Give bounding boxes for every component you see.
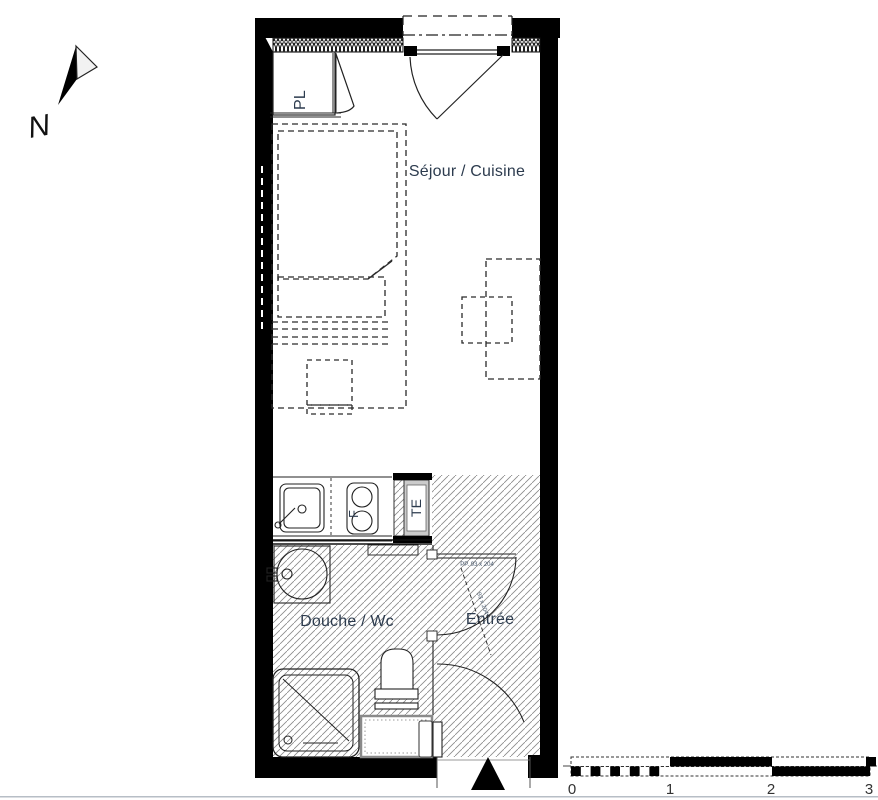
- entrance-arrow-icon: [471, 757, 505, 790]
- scale-tick-0: 0: [568, 781, 576, 798]
- threshold-step: [368, 545, 418, 555]
- scale-tick-1: 1: [666, 781, 674, 798]
- electrical-panel-label: TE: [408, 499, 424, 517]
- kitchen-counter: [273, 477, 392, 541]
- stove-label: F: [346, 510, 361, 518]
- closet-label: PL: [292, 90, 309, 110]
- bed-outline: [272, 124, 406, 408]
- table-outline: [486, 259, 540, 379]
- balcony-door: [403, 16, 512, 119]
- scale-tick-2: 2: [767, 781, 775, 798]
- floor-plan: N: [0, 0, 878, 800]
- scale-bar: 0 1 2 3: [563, 757, 877, 798]
- stove: F: [346, 483, 378, 534]
- bathroom-door-size-label: PP. 93 x 204: [460, 562, 494, 568]
- floor-plan-page: N: [0, 0, 878, 800]
- room-label-sejour-cuisine: Séjour / Cuisine: [409, 163, 525, 180]
- insulation-strip-right: [512, 38, 540, 52]
- room-label-douche-wc: Douche / Wc: [300, 613, 394, 630]
- insulation-strip-left: [273, 38, 403, 52]
- room-label-entree: Entrée: [466, 611, 514, 628]
- north-label: N: [25, 109, 52, 145]
- closet-pl: PL: [270, 52, 354, 117]
- electrical-panel-te: TE: [393, 473, 432, 543]
- nightstand-outline: [307, 360, 352, 414]
- wc-door: [361, 716, 432, 757]
- chair-outline: [462, 297, 512, 343]
- kitchen-sink: [275, 484, 324, 532]
- scale-tick-3: 3: [865, 781, 873, 798]
- page-bottom-divider: [0, 796, 878, 798]
- north-arrow-icon: N: [25, 46, 97, 145]
